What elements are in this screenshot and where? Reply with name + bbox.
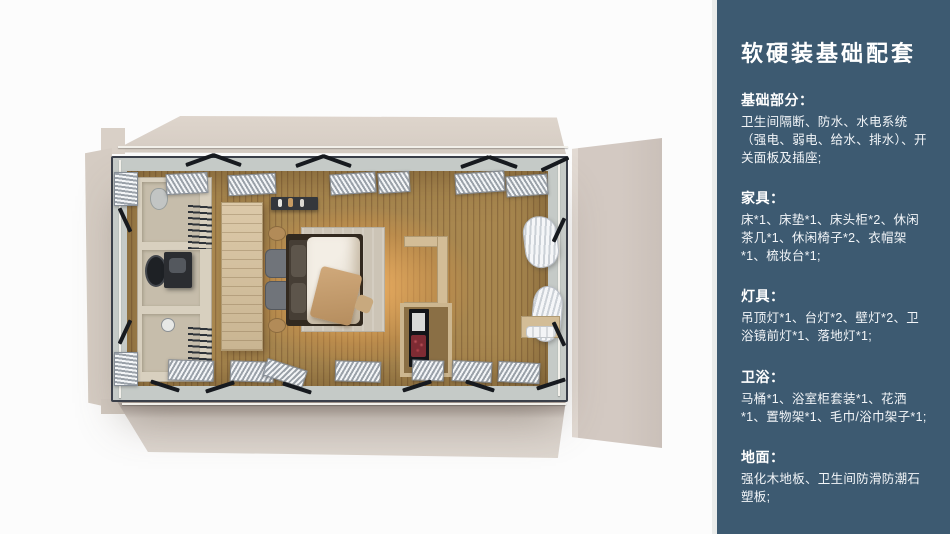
- section-basics: 基础部分： 卫生间隔断、防水、水电系统（强电、弱电、给水、排水）、开关面板及插座…: [741, 90, 927, 167]
- sidebar-title: 软硬装基础配套: [741, 40, 927, 69]
- shelf-bottle-3: [300, 199, 304, 207]
- nightstand-1: [268, 226, 286, 241]
- shelf-bottle-2: [288, 198, 293, 207]
- wall-flap-left: [85, 148, 112, 408]
- section-bathroom: 卫浴： 马桶*1、浴室柜套装*1、花洒*1、置物架*1、毛巾/浴巾架子*1;: [741, 367, 927, 426]
- pillow-2: [291, 283, 306, 313]
- towel-rack-upper: [188, 205, 212, 249]
- section-body: 卫生间隔断、防水、水电系统（强电、弱电、给水、排水）、开关面板及插座;: [741, 113, 927, 167]
- shelf-bottle-1: [278, 199, 282, 207]
- railing-right: [558, 162, 560, 396]
- louver-panel: [412, 359, 445, 381]
- louver-panel: [227, 173, 276, 196]
- louver-panel: [377, 171, 410, 194]
- louver-panel: [497, 361, 540, 384]
- louver-panel: [335, 360, 382, 383]
- section-flooring: 地面： 强化木地板、卫生间防滑防潮石塑板;: [741, 447, 927, 506]
- pillow-1: [291, 245, 306, 277]
- section-furniture: 家具： 床*1、床垫*1、床头柜*2、休闲茶几*1、休闲椅子*2、衣帽架*1、梳…: [741, 188, 927, 265]
- rolled-towels: [526, 326, 556, 338]
- section-body: 床*1、床垫*1、床头柜*2、休闲茶几*1、休闲椅子*2、衣帽架*1、梳妆台*1…: [741, 211, 927, 265]
- section-heading: 地面：: [741, 447, 927, 467]
- section-heading: 基础部分：: [741, 90, 927, 110]
- sidebar: 软硬装基础配套 基础部分： 卫生间隔断、防水、水电系统（强电、弱电、给水、排水）…: [717, 0, 950, 534]
- louver-panel: [451, 360, 492, 383]
- section-heading: 家具：: [741, 188, 927, 208]
- flower-arrangement: [411, 335, 426, 357]
- louver-panel: [454, 170, 505, 194]
- louver-panel: [329, 171, 376, 195]
- wall-flap-right: [572, 138, 662, 448]
- wardrobe-partition: [221, 202, 263, 351]
- louver-panel: [114, 352, 138, 386]
- section-lighting: 灯具： 吊顶灯*1、台灯*2、壁灯*2、卫浴镜前灯*1、落地灯*1;: [741, 286, 927, 345]
- wall-flap-top: [110, 116, 566, 154]
- vanity-sink: [169, 258, 186, 273]
- minibar-door-panel: [412, 313, 425, 331]
- wall-flap-bottom: [115, 398, 566, 458]
- floorplan-render: [0, 0, 717, 534]
- nightstand-2: [268, 318, 286, 333]
- louver-panel: [505, 174, 548, 198]
- louver-panel: [165, 172, 208, 195]
- section-body: 马桶*1、浴室柜套装*1、花洒*1、置物架*1、毛巾/浴巾架子*1;: [741, 390, 927, 426]
- section-body: 强化木地板、卫生间防滑防潮石塑板;: [741, 470, 927, 506]
- railing-top: [118, 146, 568, 148]
- section-heading: 卫浴：: [741, 367, 927, 387]
- shower-head: [161, 318, 175, 332]
- page: 软硬装基础配套 基础部分： 卫生间隔断、防水、水电系统（强电、弱电、给水、排水）…: [0, 0, 950, 534]
- toilet: [150, 188, 168, 210]
- railing-bottom: [122, 403, 566, 405]
- section-body: 吊顶灯*1、台灯*2、壁灯*2、卫浴镜前灯*1、落地灯*1;: [741, 309, 927, 345]
- louver-panel: [114, 172, 138, 206]
- section-heading: 灯具：: [741, 286, 927, 306]
- louver-panel: [168, 359, 215, 382]
- shelf-post: [437, 236, 448, 313]
